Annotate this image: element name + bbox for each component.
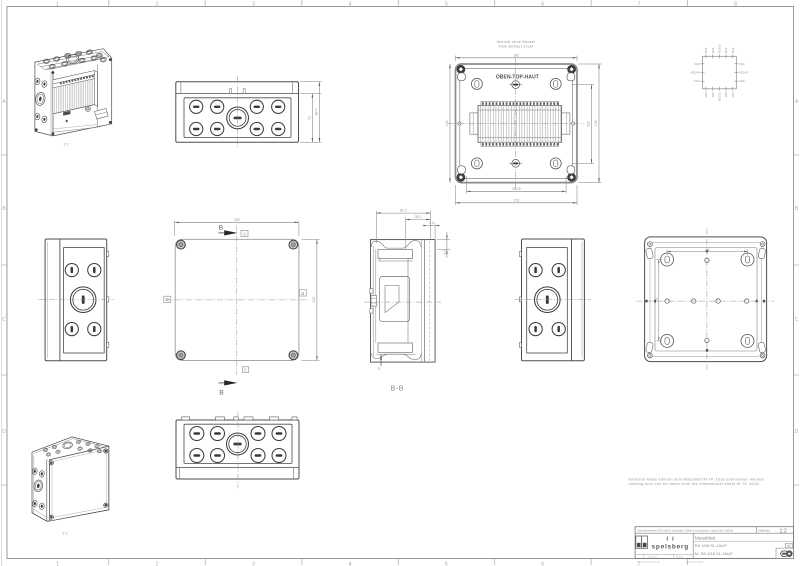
svg-text:Ansicht ohne Deckel: Ansicht ohne Deckel [497, 40, 536, 44]
svg-text:102: 102 [234, 218, 240, 222]
svg-text:B-B: B-B [391, 385, 404, 392]
svg-text:M20: M20 [694, 62, 700, 66]
svg-text:B: B [301, 291, 304, 296]
svg-text:128: 128 [656, 297, 659, 302]
svg-text:102: 102 [445, 120, 449, 126]
svg-text:Vorlage: 04-06-000: Vorlage: 04-06-000 [686, 560, 705, 563]
svg-text:2: 2 [155, 1, 158, 7]
svg-text:6: 6 [541, 1, 544, 7]
svg-text:71: 71 [307, 116, 311, 120]
svg-text:OBEN-TOP-HAUT: OBEN-TOP-HAUT [496, 75, 539, 81]
svg-text:152.8: 152.8 [512, 187, 521, 191]
svg-text:missing size can be taken from: missing size can be taken from the dimen… [629, 481, 761, 486]
svg-text:Freigabe: Freigabe [649, 556, 658, 559]
svg-text:M20: M20 [731, 47, 735, 53]
svg-text:5: 5 [445, 562, 448, 566]
svg-text:Maßstab:: Maßstab: [759, 529, 771, 533]
svg-text:C: C [795, 317, 799, 323]
svg-text:1:2: 1:2 [63, 142, 69, 147]
svg-text:M20: M20 [724, 47, 728, 53]
svg-text:2: 2 [155, 562, 158, 566]
svg-text:B: B [795, 206, 799, 212]
svg-text:spelsberg: spelsberg [652, 543, 689, 550]
svg-text:81.2: 81.2 [400, 209, 407, 213]
svg-text:35.2: 35.2 [415, 215, 422, 219]
svg-text:R04-B: R04-B [676, 557, 683, 559]
svg-text:M20: M20 [704, 92, 708, 98]
svg-text:6: 6 [541, 562, 544, 566]
svg-text:8: 8 [734, 1, 737, 7]
svg-text:4: 4 [348, 1, 351, 7]
svg-text:176: 176 [513, 198, 519, 202]
svg-text:7: 7 [637, 1, 640, 7]
svg-text:1:2: 1:2 [780, 528, 787, 534]
svg-text:M20: M20 [724, 92, 728, 98]
svg-text:102: 102 [312, 297, 316, 303]
svg-text:B: B [219, 224, 224, 231]
svg-text:C: C [2, 317, 6, 323]
svg-text:1: 1 [56, 1, 59, 7]
svg-text:3: 3 [252, 562, 255, 566]
svg-text:M32/40: M32/40 [691, 71, 700, 75]
svg-text:120: 120 [586, 121, 590, 127]
svg-text:A: A [2, 99, 6, 105]
svg-text:B: B [2, 206, 6, 212]
svg-text:C: C [244, 368, 247, 373]
svg-text:102: 102 [513, 53, 519, 57]
svg-text:Werknorm-Nr: 04-06-105: Werknorm-Nr: 04-06-105 [637, 560, 661, 563]
svg-text:3: 3 [252, 1, 255, 7]
svg-text:B: B [219, 389, 224, 396]
svg-text:5.6: 5.6 [443, 250, 447, 255]
svg-text:RK 4/18 SL-18x4²: RK 4/18 SL-18x4² [695, 543, 727, 548]
svg-text:Massblatt: Massblatt [695, 535, 716, 541]
svg-text:M25/32: M25/32 [717, 44, 721, 53]
svg-text:Schutzvermerk ISO 16016 beacht: Schutzvermerk ISO 16016 beachten. Refer … [637, 529, 733, 533]
svg-text:A: A [795, 99, 799, 105]
svg-text:M20: M20 [711, 47, 715, 53]
svg-text:↓: ↓ [637, 556, 638, 559]
svg-text:M20: M20 [694, 79, 700, 83]
svg-text:M20: M20 [711, 92, 715, 98]
svg-text:M20: M20 [739, 62, 745, 66]
svg-text:D: D [795, 429, 799, 435]
svg-text:89.7: 89.7 [314, 109, 318, 116]
svg-text:5: 5 [445, 1, 448, 7]
svg-text:A2: A2 [787, 544, 791, 548]
svg-text:M20: M20 [731, 92, 735, 98]
svg-text:D: D [2, 429, 6, 435]
svg-text:M20: M20 [739, 79, 745, 83]
svg-text:View without cover: View without cover [498, 45, 534, 49]
svg-text:A: A [243, 231, 246, 236]
svg-text:4: 4 [348, 562, 351, 566]
svg-text:174: 174 [594, 120, 598, 126]
svg-text:5.5: 5.5 [429, 221, 434, 225]
svg-text:M20: M20 [704, 47, 708, 53]
svg-text:M25/32: M25/32 [717, 92, 721, 101]
svg-text:M32/40: M32/40 [739, 71, 748, 75]
svg-text:128: 128 [705, 248, 710, 251]
svg-text:M- RK 4/18 SL-18x4²: M- RK 4/18 SL-18x4² [695, 551, 733, 556]
svg-text:D: D [166, 297, 169, 302]
svg-text:1: 1 [56, 562, 59, 566]
svg-text:1:2: 1:2 [62, 531, 68, 536]
